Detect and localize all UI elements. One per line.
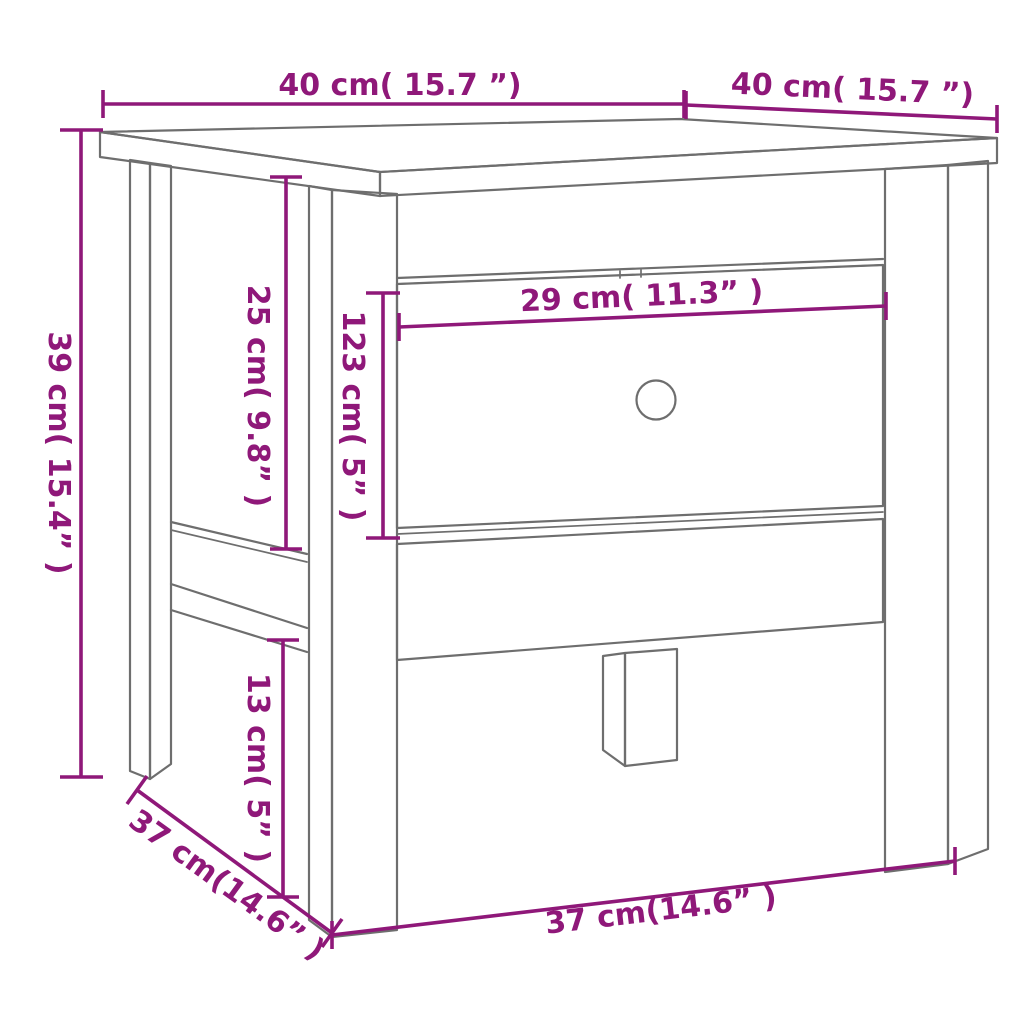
back-left-leg [130, 160, 171, 779]
label-leg-clearance: 13 cm( 5” ) [240, 673, 275, 863]
tabletop-left-edge-band [100, 132, 380, 196]
table-drawing [100, 119, 997, 937]
label-top-width: 40 cm( 15.7 ”) [730, 67, 975, 113]
label-overall-height: 39 cm( 15.4” ) [41, 331, 76, 574]
label-drawer-front-height: 123 cm( 5” ) [335, 310, 370, 521]
diagram-canvas: 40 cm( 15.7 ”) 40 cm( 15.7 ”) 39 cm( 15.… [0, 0, 1024, 1024]
label-base-width: 37 cm(14.6” ) [543, 879, 778, 941]
dimension-diagram: 40 cm( 15.7 ”) 40 cm( 15.7 ”) 39 cm( 15.… [0, 0, 1024, 1024]
front-right-leg [885, 161, 988, 872]
center-support-block [603, 649, 677, 766]
label-base-depth: 37 cm(14.6” ) [122, 803, 331, 968]
tabletop [100, 119, 997, 196]
bottom-rail [397, 519, 883, 660]
dimension-labels: 40 cm( 15.7 ”) 40 cm( 15.7 ”) 39 cm( 15.… [41, 67, 975, 968]
label-apron-height: 25 cm( 9.8” ) [240, 285, 275, 507]
label-top-depth: 40 cm( 15.7 ”) [278, 68, 521, 103]
drawer-knob [637, 381, 676, 420]
dim-line-drawer-front-height [366, 293, 400, 538]
